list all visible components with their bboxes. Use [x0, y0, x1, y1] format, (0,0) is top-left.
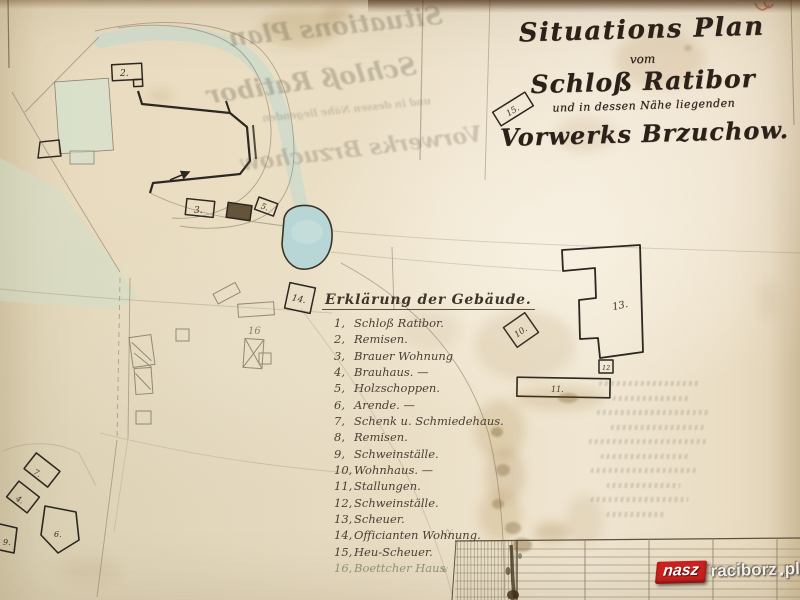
legend-item-label: Boettcher Haus [354, 560, 540, 576]
legend-item: 5,Holzschoppen. [320, 380, 540, 396]
watermark-raciborz: raciborz [710, 560, 777, 582]
legend-item-label: Heu-Scheuer. [354, 544, 540, 560]
farm-cluster [0, 453, 79, 553]
garden-block [38, 78, 113, 164]
legend-item-number: 2, [334, 331, 354, 347]
legend-item-label: Remisen. [354, 429, 540, 445]
legend-item-number: 16, [334, 560, 354, 576]
building-dark [226, 202, 252, 220]
legend-item-label: Brauhaus. — [354, 364, 540, 380]
legend-item: 9,Schweinställe. [320, 446, 540, 462]
watermark-logo: nasz raciborz pl [656, 558, 800, 584]
castle-horseshoe [138, 91, 250, 193]
legend: Erklärung der Gebäude. 1,Schloß Ratibor.… [320, 289, 540, 577]
building-label-13: 13. [611, 299, 629, 313]
legend-title: Erklärung der Gebäude. [322, 292, 535, 310]
building-label-6: 6. [54, 530, 62, 539]
legend-item-number: 11, [334, 478, 354, 494]
pond [282, 206, 332, 270]
building-label-12: 12 [602, 364, 610, 372]
legend-item-label: Schweinställe. [354, 446, 540, 462]
legend-item: 6,Arende. — [320, 397, 540, 413]
legend-item: 16,Boettcher Haus [320, 560, 540, 576]
watermark-nasz: nasz [655, 561, 707, 584]
legend-list: 1,Schloß Ratibor.2,Remisen.3,Brauer Wohn… [320, 315, 540, 577]
legend-item: 12,Schweinställe. [320, 495, 540, 511]
map-title: Situations Plan [484, 11, 799, 50]
legend-item-label: Remisen. [354, 331, 540, 347]
legend-item-label: Schenk u. Schmiedehaus. [354, 413, 540, 429]
building-label-3: 3. [194, 206, 203, 216]
legend-item-label: Stallungen. [354, 478, 540, 494]
legend-item-number: 13, [334, 511, 354, 527]
legend-item-label: Holzschoppen. [354, 380, 540, 396]
legend-item-number: 8, [334, 429, 354, 445]
legend-item: 14,Officianten Wohnung. [320, 527, 540, 543]
legend-item: 8,Remisen. [320, 429, 540, 445]
watermark-dot-icon [780, 572, 783, 575]
legend-item: 1,Schloß Ratibor. [320, 315, 540, 331]
legend-item: 11,Stallungen. [320, 478, 540, 494]
legend-item: 10,Wohnhaus. — [320, 462, 540, 478]
legend-item-number: 4, [334, 364, 354, 380]
legend-item-number: 1, [334, 315, 354, 331]
legend-item-label: Schweinställe. [354, 495, 540, 511]
legend-item-number: 10, [334, 462, 354, 478]
legend-item-number: 12, [334, 495, 354, 511]
title-block: Situations Plan vom Schloß Ratibor und i… [484, 4, 800, 153]
pencil-buildings [129, 282, 274, 424]
legend-item-number: 5, [334, 380, 354, 396]
moat-teal-wash [101, 33, 302, 212]
legend-item: 3,Brauer Wohnung [320, 348, 540, 364]
legend-item-number: 15, [334, 544, 354, 560]
building-label-2: 2. [119, 69, 129, 79]
legend-item: 15,Heu-Scheuer. [320, 544, 540, 560]
legend-item-label: Scheuer. [354, 511, 540, 527]
legend-item: 2,Remisen. [320, 331, 540, 347]
legend-item-label: Schloß Ratibor. [354, 315, 540, 331]
building-label-9: 9. [3, 538, 11, 547]
watermark-pl: pl [784, 559, 800, 579]
legend-item: 7,Schenk u. Schmiedehaus. [320, 413, 540, 429]
legend-item-number: 9, [334, 446, 354, 462]
legend-item-label: Brauer Wohnung [354, 348, 540, 364]
legend-item: 4,Brauhaus. — [320, 364, 540, 380]
green-field-wash [0, 158, 138, 309]
building-label-16: 16 [248, 326, 261, 337]
legend-item-number: 3, [334, 348, 354, 364]
building-label-14: 14. [291, 293, 307, 306]
legend-item-number: 14, [334, 527, 354, 543]
legend-item-label: Officianten Wohnung. [354, 527, 540, 543]
legend-item-label: Wohnhaus. — [354, 462, 540, 478]
legend-item-number: 6, [334, 397, 354, 413]
legend-item: 13,Scheuer. [320, 511, 540, 527]
legend-item-label: Arende. — [354, 397, 540, 413]
building-label-7: 7. [32, 467, 43, 479]
legend-item-number: 7, [334, 413, 354, 429]
map-photo: 16 [0, 0, 800, 600]
